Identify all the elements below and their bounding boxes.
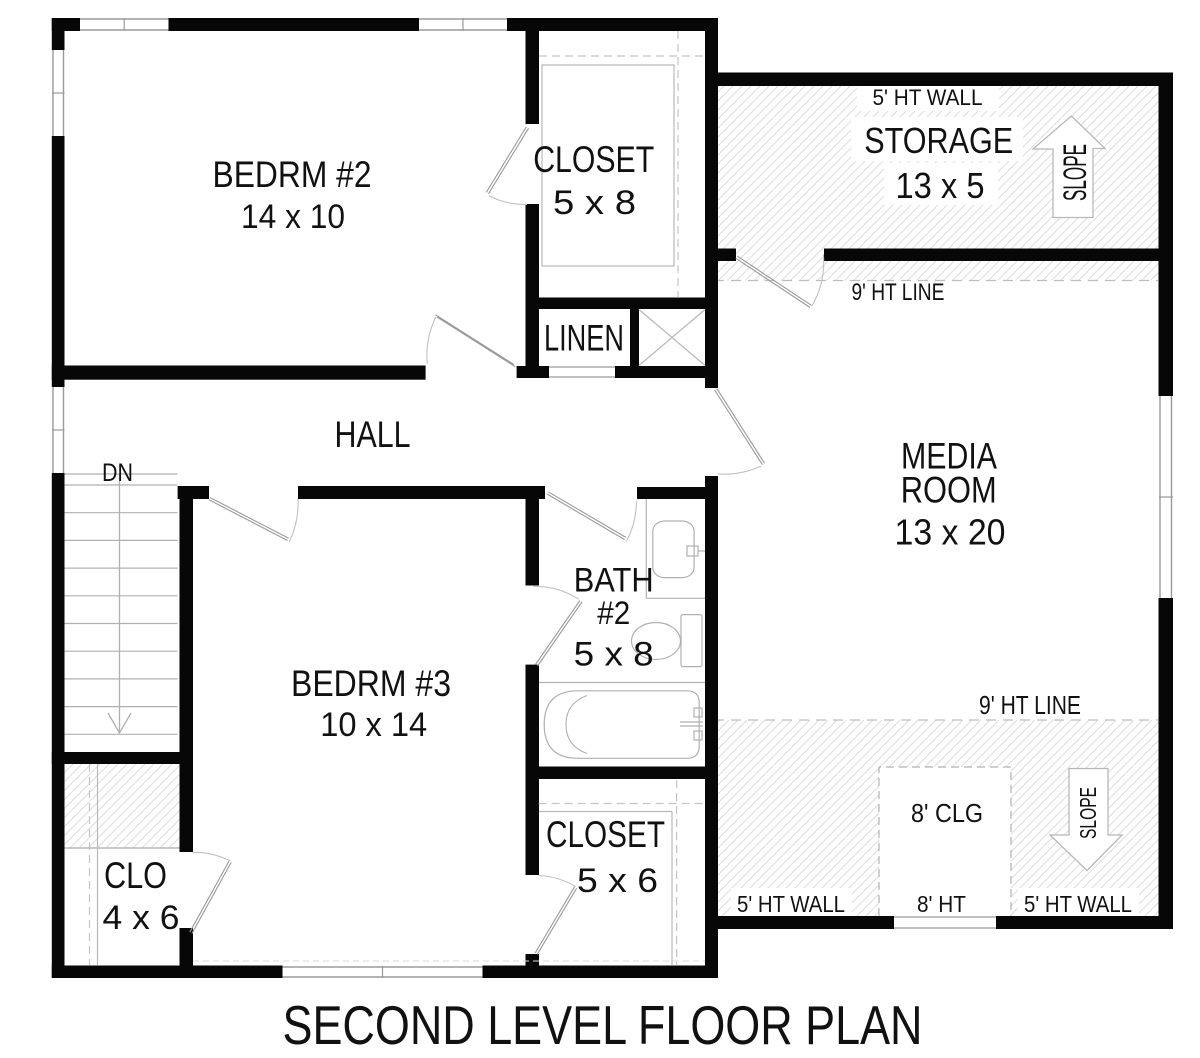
svg-text:13 x 20: 13 x 20 — [895, 512, 1006, 553]
svg-text:14 x 10: 14 x 10 — [241, 198, 345, 236]
svg-text:BATH: BATH — [574, 562, 654, 600]
svg-text:5 x 8: 5 x 8 — [553, 184, 636, 222]
svg-text:SLOPE: SLOPE — [1057, 144, 1093, 201]
svg-text:SECOND LEVEL FLOOR PLAN: SECOND LEVEL FLOOR PLAN — [283, 994, 923, 1056]
svg-text:13 x 5: 13 x 5 — [896, 165, 985, 206]
svg-text:5' HT WALL: 5' HT WALL — [1024, 891, 1132, 917]
svg-text:5 x 8: 5 x 8 — [574, 636, 654, 674]
svg-text:9' HT LINE: 9' HT LINE — [979, 690, 1081, 720]
svg-text:STORAGE: STORAGE — [864, 120, 1013, 161]
svg-text:10 x 14: 10 x 14 — [320, 706, 427, 744]
svg-text:ROOM: ROOM — [901, 470, 997, 511]
svg-text:#2: #2 — [597, 595, 630, 631]
svg-text:CLOSET: CLOSET — [533, 139, 654, 180]
svg-text:CLO: CLO — [104, 855, 167, 896]
svg-text:9' HT LINE: 9' HT LINE — [852, 279, 945, 306]
svg-text:SLOPE: SLOPE — [1075, 787, 1101, 839]
svg-text:LINEN: LINEN — [544, 318, 624, 359]
svg-text:5 x 6: 5 x 6 — [577, 862, 658, 900]
svg-text:5' HT WALL: 5' HT WALL — [737, 891, 845, 917]
svg-text:8' HT: 8' HT — [917, 891, 966, 917]
svg-text:DN: DN — [102, 459, 133, 487]
svg-text:BEDRM #3: BEDRM #3 — [291, 663, 451, 704]
svg-text:5' HT WALL: 5' HT WALL — [873, 85, 983, 110]
svg-text:4 x 6: 4 x 6 — [103, 899, 180, 937]
svg-text:HALL: HALL — [335, 414, 411, 455]
svg-text:BEDRM #2: BEDRM #2 — [213, 154, 372, 195]
svg-text:8' CLG: 8' CLG — [911, 798, 983, 828]
svg-text:CLOSET: CLOSET — [546, 814, 665, 855]
